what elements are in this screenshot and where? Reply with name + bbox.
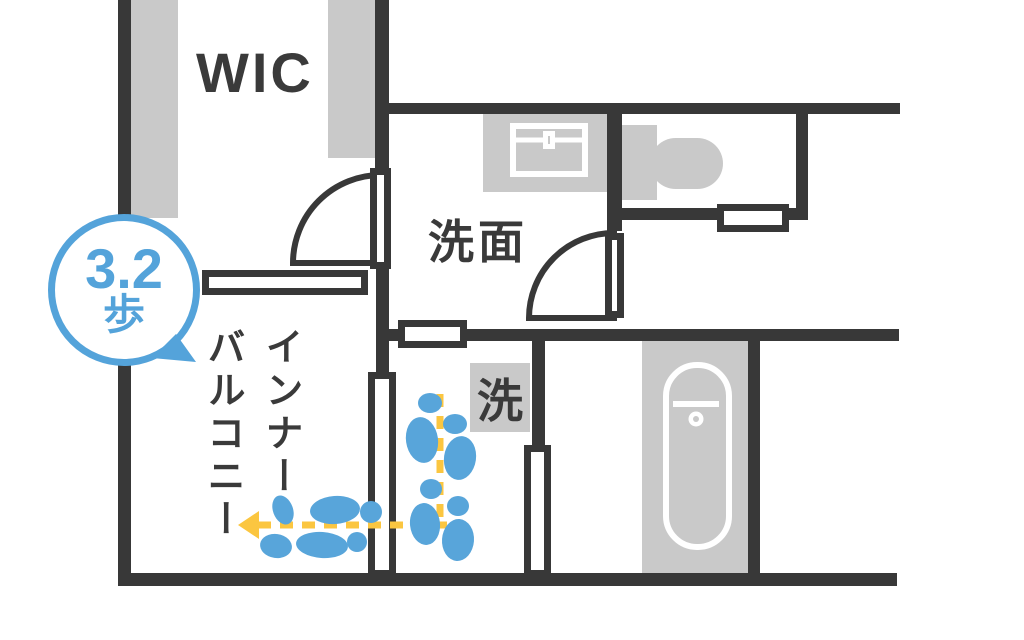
washer-space: 洗 (470, 363, 530, 432)
wall-top (375, 103, 900, 114)
room-label-balcony-line1: インナー (261, 327, 299, 499)
bathroom-floor (642, 341, 748, 574)
wall-laundry-bath (532, 341, 545, 453)
wall-bottom-outer (118, 573, 897, 586)
room-label-washroom: 洗面 (428, 206, 528, 272)
toilet-tank (622, 125, 657, 200)
window-icon-balcony-side (372, 376, 393, 574)
room-label-wic: WIC (196, 40, 314, 105)
room-label-laundry: 洗 (477, 365, 523, 431)
door-swing-icon-washroom (529, 233, 614, 318)
closet-shelf-icon (130, 0, 178, 218)
wall-wic-divider-upper (375, 0, 389, 171)
speech-bubble-tail (140, 320, 210, 368)
door-leaf-washroom (609, 237, 621, 315)
floor-plan-canvas: WIC 洗面 洗 インナー バルコニー 3.2 歩 (0, 0, 1024, 640)
wall-washroom-toilet (607, 103, 622, 231)
door-swing-icon-wic (293, 175, 381, 263)
window-icon-laundry-entry (402, 324, 464, 345)
wall-toilet-right (796, 103, 808, 220)
window-icon-bath (528, 449, 548, 574)
steps-value: 3.2 (85, 244, 163, 294)
door-leaf-wic (374, 172, 388, 266)
wall-wic-divider-lower (376, 263, 389, 380)
window-icon-balcony-top (206, 274, 365, 292)
closet-shelf-icon (328, 0, 375, 158)
window-icon-toilet (721, 208, 786, 229)
wall-bath-right (748, 329, 760, 574)
steps-unit: 歩 (103, 294, 145, 336)
toilet-bowl (650, 138, 723, 189)
